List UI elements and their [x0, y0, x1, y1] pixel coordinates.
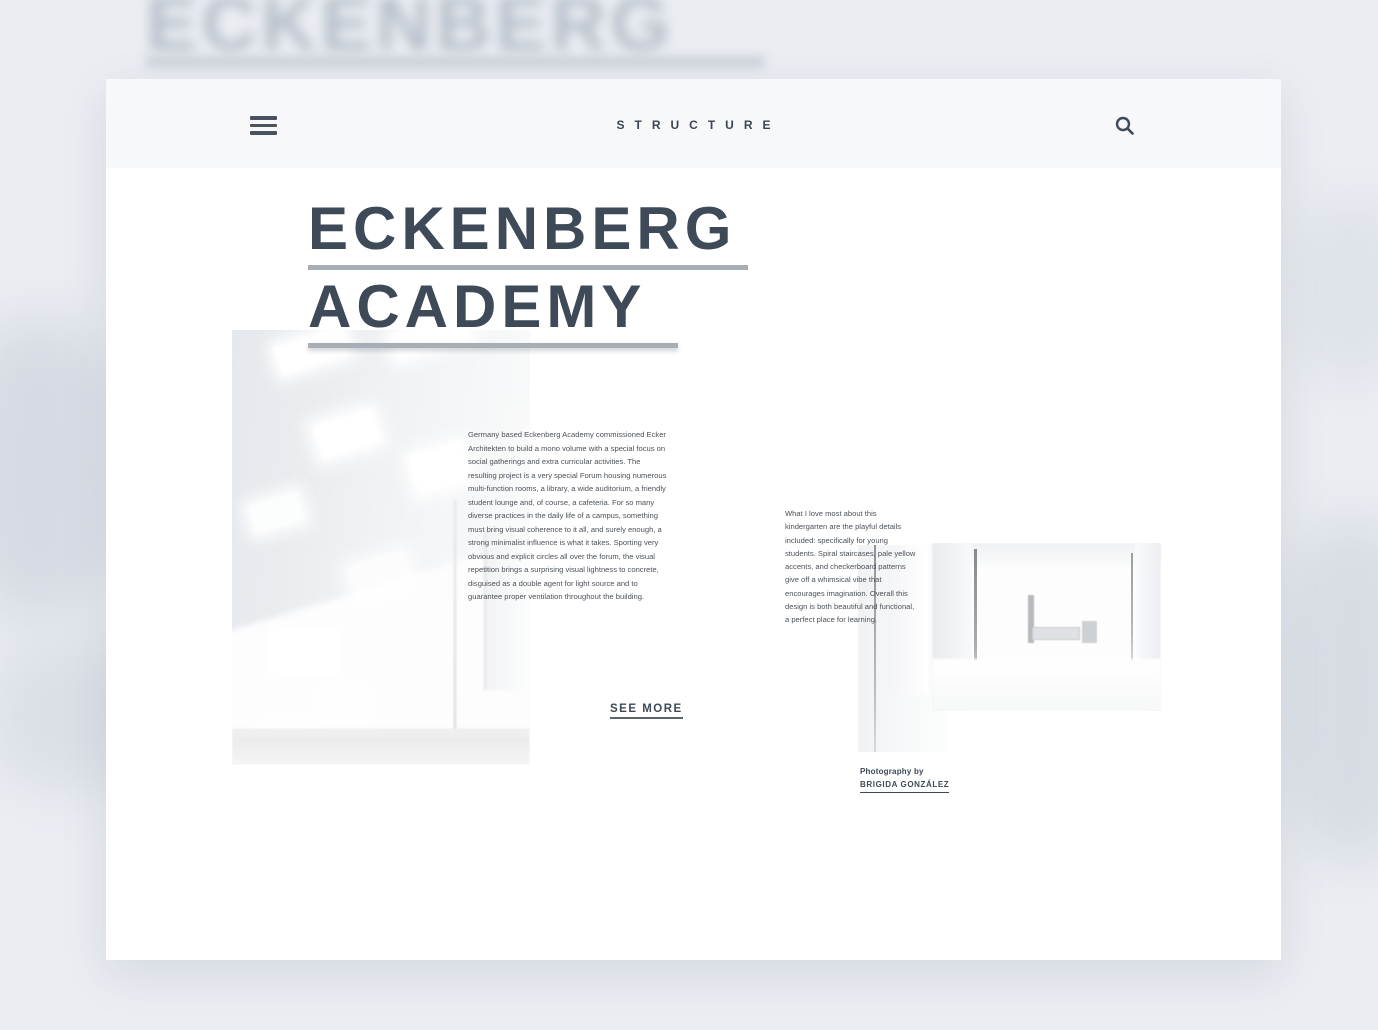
background-echo-underline	[146, 57, 764, 67]
article-title-line1: ECKENBERG	[308, 199, 736, 259]
article-body: Germany based Eckenberg Academy commissi…	[468, 428, 669, 604]
site-card: STRUCTURE ECKENBERG	[106, 79, 1281, 960]
title-underline-2	[308, 343, 678, 348]
background-blur-blob	[1280, 520, 1378, 860]
background-blur-blob	[0, 320, 120, 620]
article-sidebar-text: What I love most about this kindergarten…	[785, 507, 918, 627]
photo-credit-label: Photography by	[860, 765, 949, 778]
site-header: STRUCTURE	[106, 79, 1281, 168]
page: ECKENBERG STRUCTURE	[0, 0, 1378, 1030]
background-blur-blob	[1290, 200, 1378, 380]
photo-credit: Photography by BRIGIDA GONZÁLEZ	[860, 765, 949, 793]
site-logo[interactable]: STRUCTURE	[106, 118, 1281, 132]
see-more-link[interactable]: SEE MORE	[610, 703, 683, 719]
title-underline-1	[308, 265, 748, 270]
interior-photo-wide	[932, 543, 1161, 711]
article-title-line2: ACADEMY	[308, 277, 646, 337]
photo-credit-name: BRIGIDA GONZÁLEZ	[860, 778, 949, 793]
search-icon[interactable]	[1113, 114, 1137, 138]
